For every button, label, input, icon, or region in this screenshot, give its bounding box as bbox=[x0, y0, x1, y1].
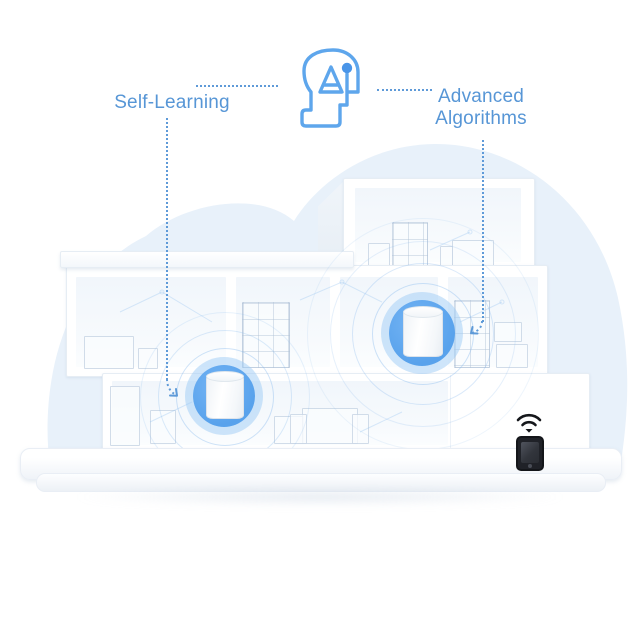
leader-line-left-horizontal bbox=[196, 85, 278, 87]
callout-advanced-algorithms: Advanced Algorithms bbox=[427, 86, 535, 130]
leader-arrow-left bbox=[160, 378, 186, 402]
leader-arrow-right bbox=[462, 320, 486, 340]
leader-line-right-horizontal bbox=[377, 89, 432, 91]
wifi-icon bbox=[511, 406, 547, 434]
mesh-router-right-top bbox=[403, 306, 443, 318]
marketing-illustration: Self-Learning Advanced Algorithms bbox=[0, 0, 640, 640]
smartphone-home-button bbox=[528, 464, 532, 468]
smartphone-icon bbox=[516, 436, 544, 471]
callout-self-learning: Self-Learning bbox=[102, 92, 242, 114]
mesh-router-left-top bbox=[206, 371, 244, 382]
leader-line-right-vertical bbox=[482, 140, 484, 322]
ai-head-icon bbox=[288, 46, 380, 138]
leader-line-left-vertical bbox=[166, 118, 168, 380]
platform-shadow bbox=[70, 488, 570, 506]
smartphone-screen bbox=[521, 442, 539, 463]
